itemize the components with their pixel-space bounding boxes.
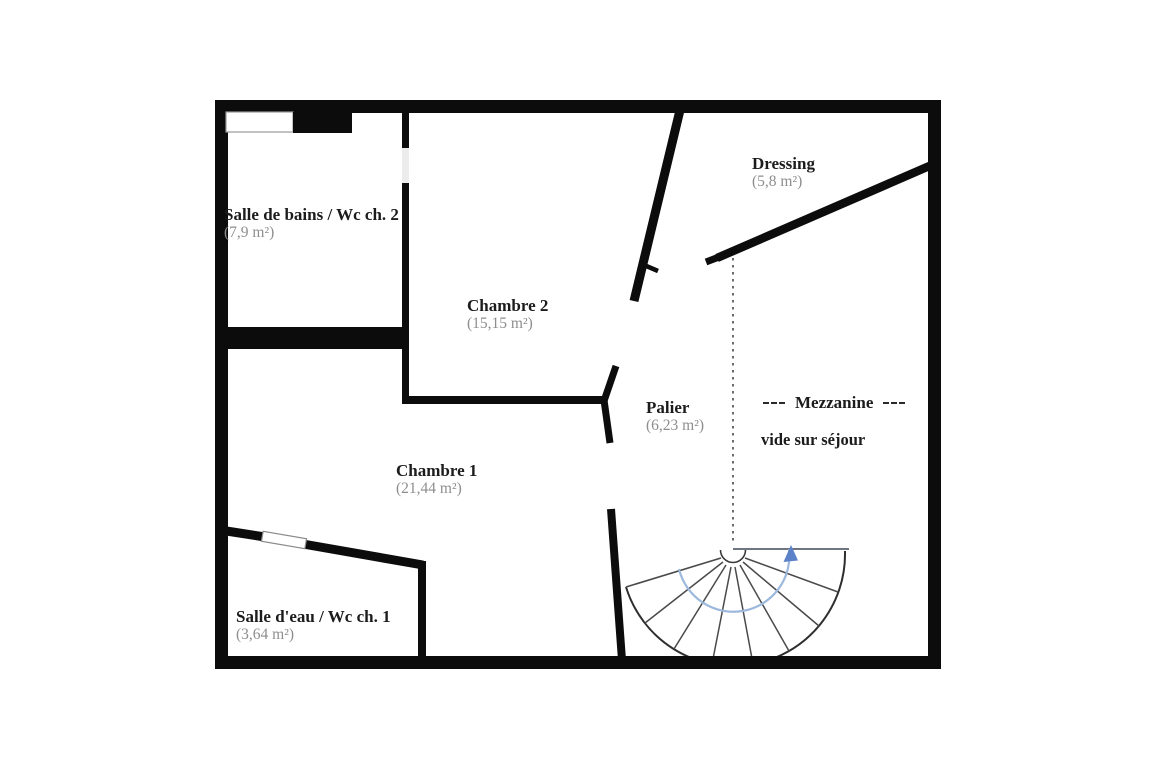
wall-shower-diagonal-b <box>303 544 423 565</box>
outer-wall-right <box>928 100 941 669</box>
interior-walls <box>222 112 607 658</box>
staircase-newel-post <box>721 550 746 563</box>
room-label-salle-de-bains: Salle de bains / Wc ch. 2 (7,9 m²) <box>224 205 399 242</box>
wall-shower-right <box>418 561 426 658</box>
wall-vertical-upper <box>402 112 409 148</box>
mezzanine-label-row: Mezzanine <box>763 393 905 413</box>
room-name: Palier <box>646 398 689 417</box>
mezzanine-label: Mezzanine <box>795 393 873 413</box>
wall-slant-tick <box>644 265 658 271</box>
wall-bathroom-bottom <box>222 327 409 349</box>
floor-plan-canvas: Salle de bains / Wc ch. 2 (7,9 m²) Chamb… <box>0 0 1151 768</box>
bathroom-window-box <box>226 112 293 132</box>
mezzanine-dash-left <box>763 402 785 404</box>
staircase-left-edge <box>626 558 721 587</box>
room-area: (3,64 m²) <box>236 626 391 644</box>
outer-wall-left <box>215 100 228 669</box>
room-name: Dressing <box>752 154 815 173</box>
stair-direction-arrow-icon <box>784 545 799 562</box>
room-area: (15,15 m²) <box>467 315 548 333</box>
room-label-dressing: Dressing (5,8 m²) <box>752 154 815 191</box>
wall-palier-down-arm <box>604 400 610 443</box>
angled-walls <box>220 106 934 660</box>
wall-vertical-lower <box>402 183 409 398</box>
floor-plan-drawing <box>0 0 1151 768</box>
door-opening-chambre2 <box>402 148 409 183</box>
room-label-chambre-1: Chambre 1 (21,44 m²) <box>396 461 477 498</box>
spiral-staircase <box>626 545 849 666</box>
room-area: (21,44 m²) <box>396 480 477 498</box>
door-shower <box>261 531 306 548</box>
outer-walls <box>215 100 941 669</box>
room-area: (5,8 m²) <box>752 173 815 191</box>
room-label-chambre-2: Chambre 2 (15,15 m²) <box>467 296 548 333</box>
room-name: Salle d'eau / Wc ch. 1 <box>236 607 391 626</box>
wall-chambre-divider <box>402 396 607 404</box>
room-name: Chambre 2 <box>467 296 548 315</box>
wall-dressing-diagonal <box>717 164 934 258</box>
wall-dressing-end-hook <box>706 257 719 262</box>
wall-palier-up-arm <box>604 366 616 401</box>
room-name: Salle de bains / Wc ch. 2 <box>224 205 399 224</box>
room-label-palier: Palier (6,23 m²) <box>646 398 704 435</box>
duct-block <box>293 112 352 133</box>
room-area: (7,9 m²) <box>224 224 399 242</box>
wall-staircase-left <box>611 509 622 660</box>
outer-wall-top <box>215 100 941 113</box>
room-label-salle-d-eau: Salle d'eau / Wc ch. 1 (3,64 m²) <box>236 607 391 644</box>
outer-wall-bottom <box>215 656 941 669</box>
room-name: Chambre 1 <box>396 461 477 480</box>
vide-sur-sejour-label: vide sur séjour <box>761 430 865 450</box>
mezzanine-dash-right <box>883 402 905 404</box>
room-area: (6,23 m²) <box>646 417 704 435</box>
